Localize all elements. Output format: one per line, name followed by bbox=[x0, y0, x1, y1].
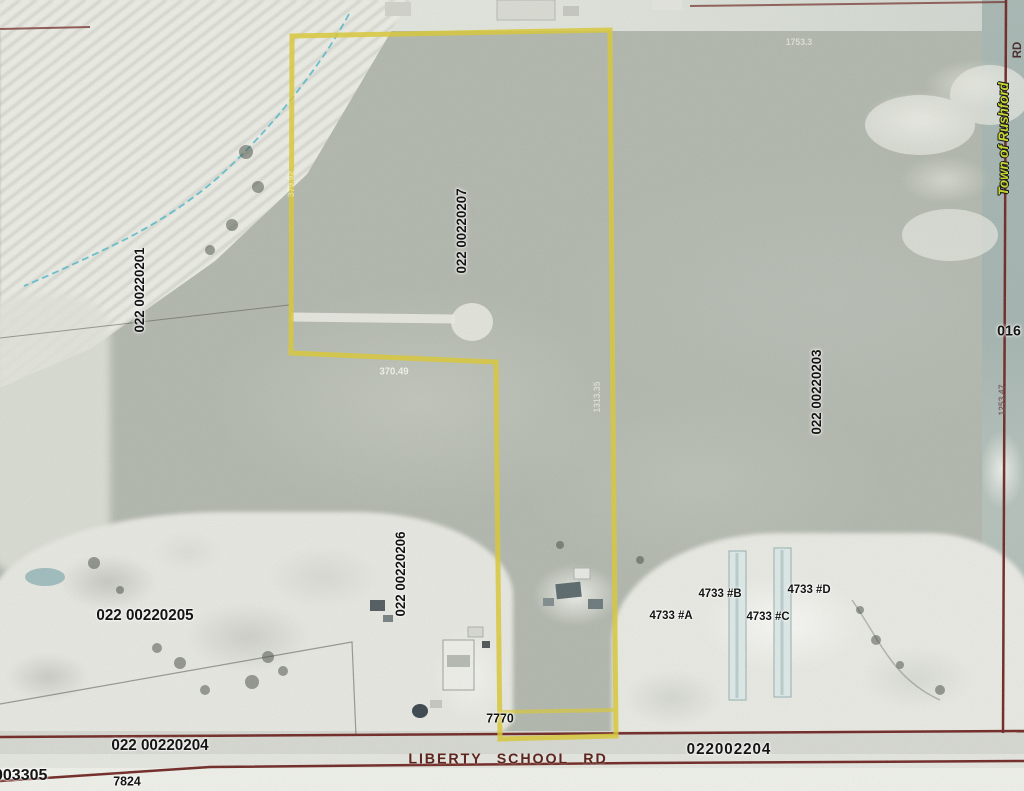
address-label-4733d: 4733 #D bbox=[787, 582, 830, 596]
address-label-4733b: 4733 #B bbox=[698, 586, 741, 600]
town-of-rushford-label: Town of Rushford bbox=[995, 82, 1011, 195]
parcel-label-003305: 003305 bbox=[0, 767, 47, 785]
address-label-4733c: 4733 #C bbox=[746, 609, 789, 623]
parcel-label-205: 022 00220205 bbox=[96, 607, 193, 625]
survey-distance-370: 370.49 bbox=[379, 367, 408, 378]
address-label-7824: 7824 bbox=[113, 774, 140, 789]
road-label-liberty-school-rd: LIBERTY SCHOOL RD bbox=[408, 751, 607, 768]
survey-distance-1313: 1313.35 bbox=[592, 382, 602, 413]
address-label-7770: 7770 bbox=[486, 711, 513, 726]
road-label-rd-partial: RD bbox=[1010, 42, 1024, 58]
photo-grain-overlay bbox=[0, 0, 1024, 791]
survey-distance-1253: 1253.47 bbox=[997, 385, 1007, 416]
parcel-label-204-right: 022002204 bbox=[687, 741, 772, 759]
parcel-label-207: 022 00220207 bbox=[453, 188, 469, 273]
parcel-label-204-left: 022 00220204 bbox=[111, 737, 208, 755]
survey-distance-1753: 1753.3 bbox=[786, 37, 812, 47]
survey-distance-379: 379.92 bbox=[286, 171, 296, 197]
parcel-aerial-map[interactable]: 022 00220201 022 00220207 022 00220203 0… bbox=[0, 0, 1024, 791]
parcel-label-206: 022 00220206 bbox=[392, 531, 408, 616]
parcel-label-016: 016 bbox=[997, 323, 1021, 340]
address-label-4733a: 4733 #A bbox=[649, 608, 692, 622]
parcel-label-203: 022 00220203 bbox=[808, 349, 824, 434]
parcel-label-201: 022 00220201 bbox=[131, 247, 147, 332]
